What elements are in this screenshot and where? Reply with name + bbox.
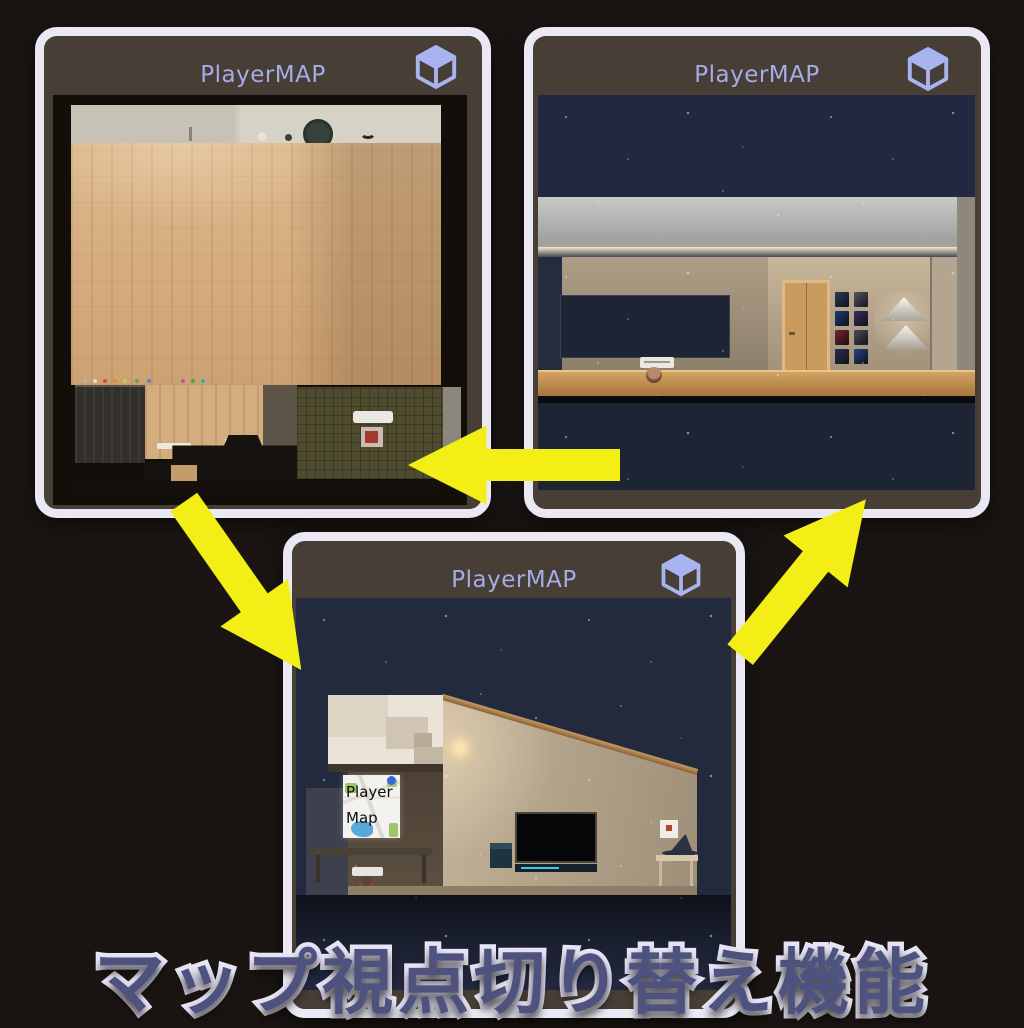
playermap-window-2[interactable]: PlayerMAP: [524, 27, 990, 518]
large-dark-screen: [560, 295, 730, 358]
tv-screen: [515, 812, 597, 863]
small-picture-frame: [660, 820, 678, 838]
cube-view-toggle-button[interactable]: [656, 549, 708, 601]
ceiling-fixture: [189, 127, 192, 141]
small-wall-picture: [361, 427, 383, 447]
hanging-colored-dots: [83, 379, 87, 383]
outdoor-shelf: [310, 848, 432, 855]
map-view-side-cutaway[interactable]: [538, 95, 975, 490]
small-wall-sign: [353, 411, 393, 423]
wall-base-strip: [348, 886, 697, 895]
wooden-counter: [538, 370, 975, 396]
shelf-leg: [316, 855, 320, 883]
map-view-overhead[interactable]: [53, 95, 467, 505]
playermap-window-1[interactable]: PlayerMAP: [35, 27, 491, 518]
floor-shadow: [71, 481, 441, 497]
wall-lamp-glow: [442, 730, 478, 766]
night-sky: [538, 95, 975, 197]
room-ceiling-strip: [71, 105, 441, 143]
media-bar: [515, 864, 597, 872]
poster-grid: [835, 292, 868, 368]
small-character-figure: [646, 367, 662, 383]
ceiling-light-dot: [258, 132, 267, 141]
cube-icon: [902, 43, 954, 95]
cube-icon: [656, 550, 706, 600]
caption-text: マップ視点切り替え機能: [94, 926, 930, 1028]
ceiling-curve-item: [360, 127, 376, 139]
ceiling-small-dot: [285, 134, 292, 141]
cube-icon: [410, 41, 462, 93]
upper-block-structure: [328, 695, 443, 770]
counter-sign: [640, 357, 674, 368]
player-map-sign: Player Map: [343, 775, 400, 838]
small-sign: [352, 867, 383, 876]
gray-wall-sliver: [306, 788, 348, 895]
wooden-door: [782, 280, 830, 383]
roof-band: [538, 197, 975, 247]
player-map-sign-text: Player Map: [346, 779, 393, 832]
cube-view-toggle-button[interactable]: [902, 43, 954, 95]
cube-view-toggle-button[interactable]: [410, 41, 462, 93]
side-panel-device: [490, 843, 512, 868]
shelf-leg: [422, 855, 426, 883]
counter-edge-shadow: [538, 396, 975, 403]
wood-floor: [71, 143, 441, 385]
chalkboard: [75, 385, 145, 463]
